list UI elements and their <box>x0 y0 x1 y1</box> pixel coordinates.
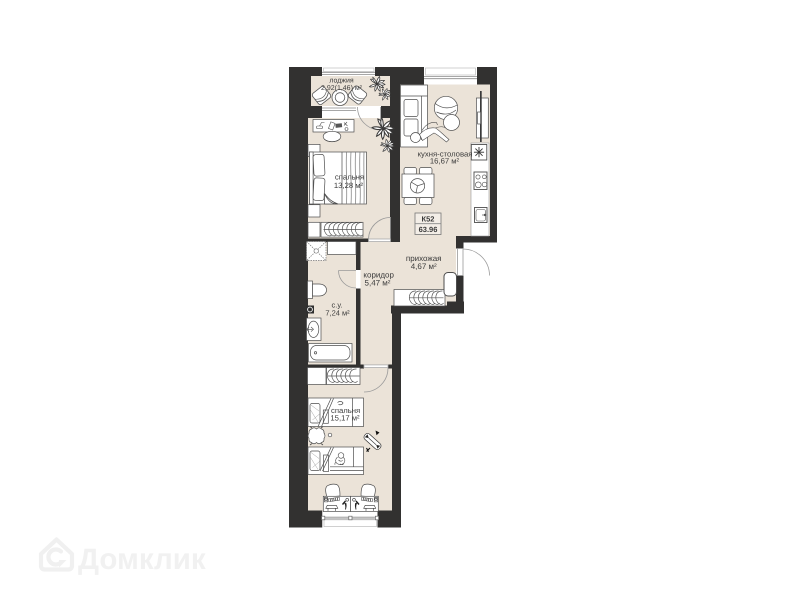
svg-text:2,92(1,46) м²: 2,92(1,46) м² <box>321 84 363 92</box>
svg-text:16,67 м²: 16,67 м² <box>430 157 460 166</box>
svg-text:7,24 м²: 7,24 м² <box>325 309 350 318</box>
svg-text:63.96: 63.96 <box>419 225 438 234</box>
svg-text:5,47 м²: 5,47 м² <box>365 279 391 288</box>
svg-text:15,17 м²: 15,17 м² <box>330 413 360 422</box>
svg-text:Домклик: Домклик <box>78 543 206 576</box>
svg-text:К52: К52 <box>422 215 435 224</box>
svg-text:4,67 м²: 4,67 м² <box>411 262 437 271</box>
svg-text:13,28 м²: 13,28 м² <box>334 181 364 190</box>
svg-text:лоджия: лоджия <box>329 78 354 85</box>
